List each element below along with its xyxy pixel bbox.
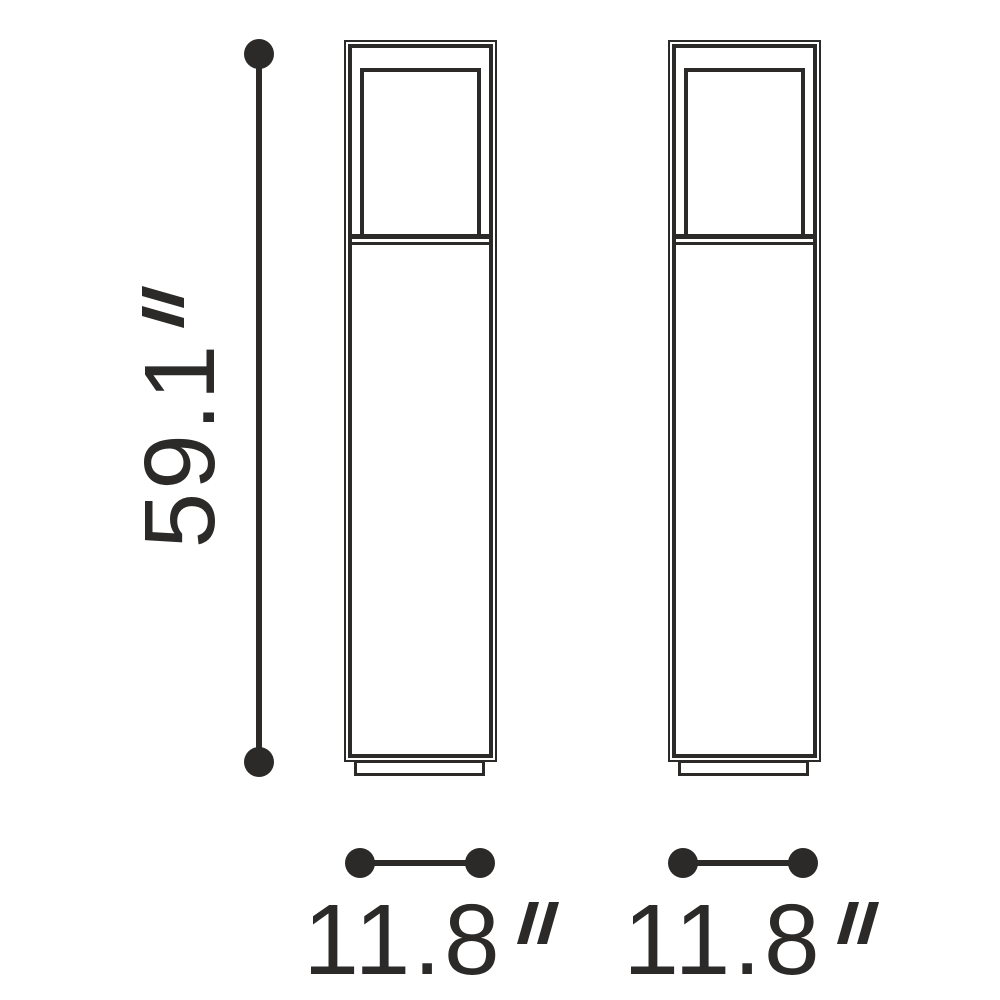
inch-double-prime-mark bbox=[523, 888, 553, 993]
side-base-plinth bbox=[678, 760, 809, 776]
side-window-sill-line bbox=[676, 234, 813, 239]
front-width-dimension-line bbox=[360, 860, 480, 866]
height-dimension-bottom-dot bbox=[244, 747, 274, 777]
front-width-right-dot bbox=[465, 848, 495, 878]
bollard-front-view-drawing bbox=[344, 40, 497, 776]
front-light-window bbox=[360, 68, 481, 238]
front-window-sill-line bbox=[352, 234, 489, 239]
bollard-side-view-drawing bbox=[668, 40, 821, 776]
side-width-dimension-label: 11.8 bbox=[588, 888, 908, 998]
front-base-plinth bbox=[354, 760, 485, 776]
front-body-top-line bbox=[352, 242, 489, 245]
inch-double-prime-mark bbox=[843, 888, 873, 993]
front-width-dimension-value: 11.8 bbox=[303, 884, 502, 996]
side-light-window bbox=[684, 68, 805, 238]
height-dimension-line bbox=[256, 54, 262, 762]
front-width-dimension-label: 11.8 bbox=[268, 888, 588, 998]
side-body-top-line bbox=[676, 242, 813, 245]
side-width-right-dot bbox=[788, 848, 818, 878]
dimension-diagram-canvas: 59.1 11.8 11.8 bbox=[0, 0, 1000, 1000]
inch-double-prime-mark bbox=[128, 292, 233, 322]
height-dimension-value: 59.1 bbox=[124, 342, 236, 549]
side-width-dimension-line bbox=[683, 860, 803, 866]
height-dimension-label: 59.1 bbox=[128, 260, 238, 580]
side-width-dimension-value: 11.8 bbox=[623, 884, 822, 996]
